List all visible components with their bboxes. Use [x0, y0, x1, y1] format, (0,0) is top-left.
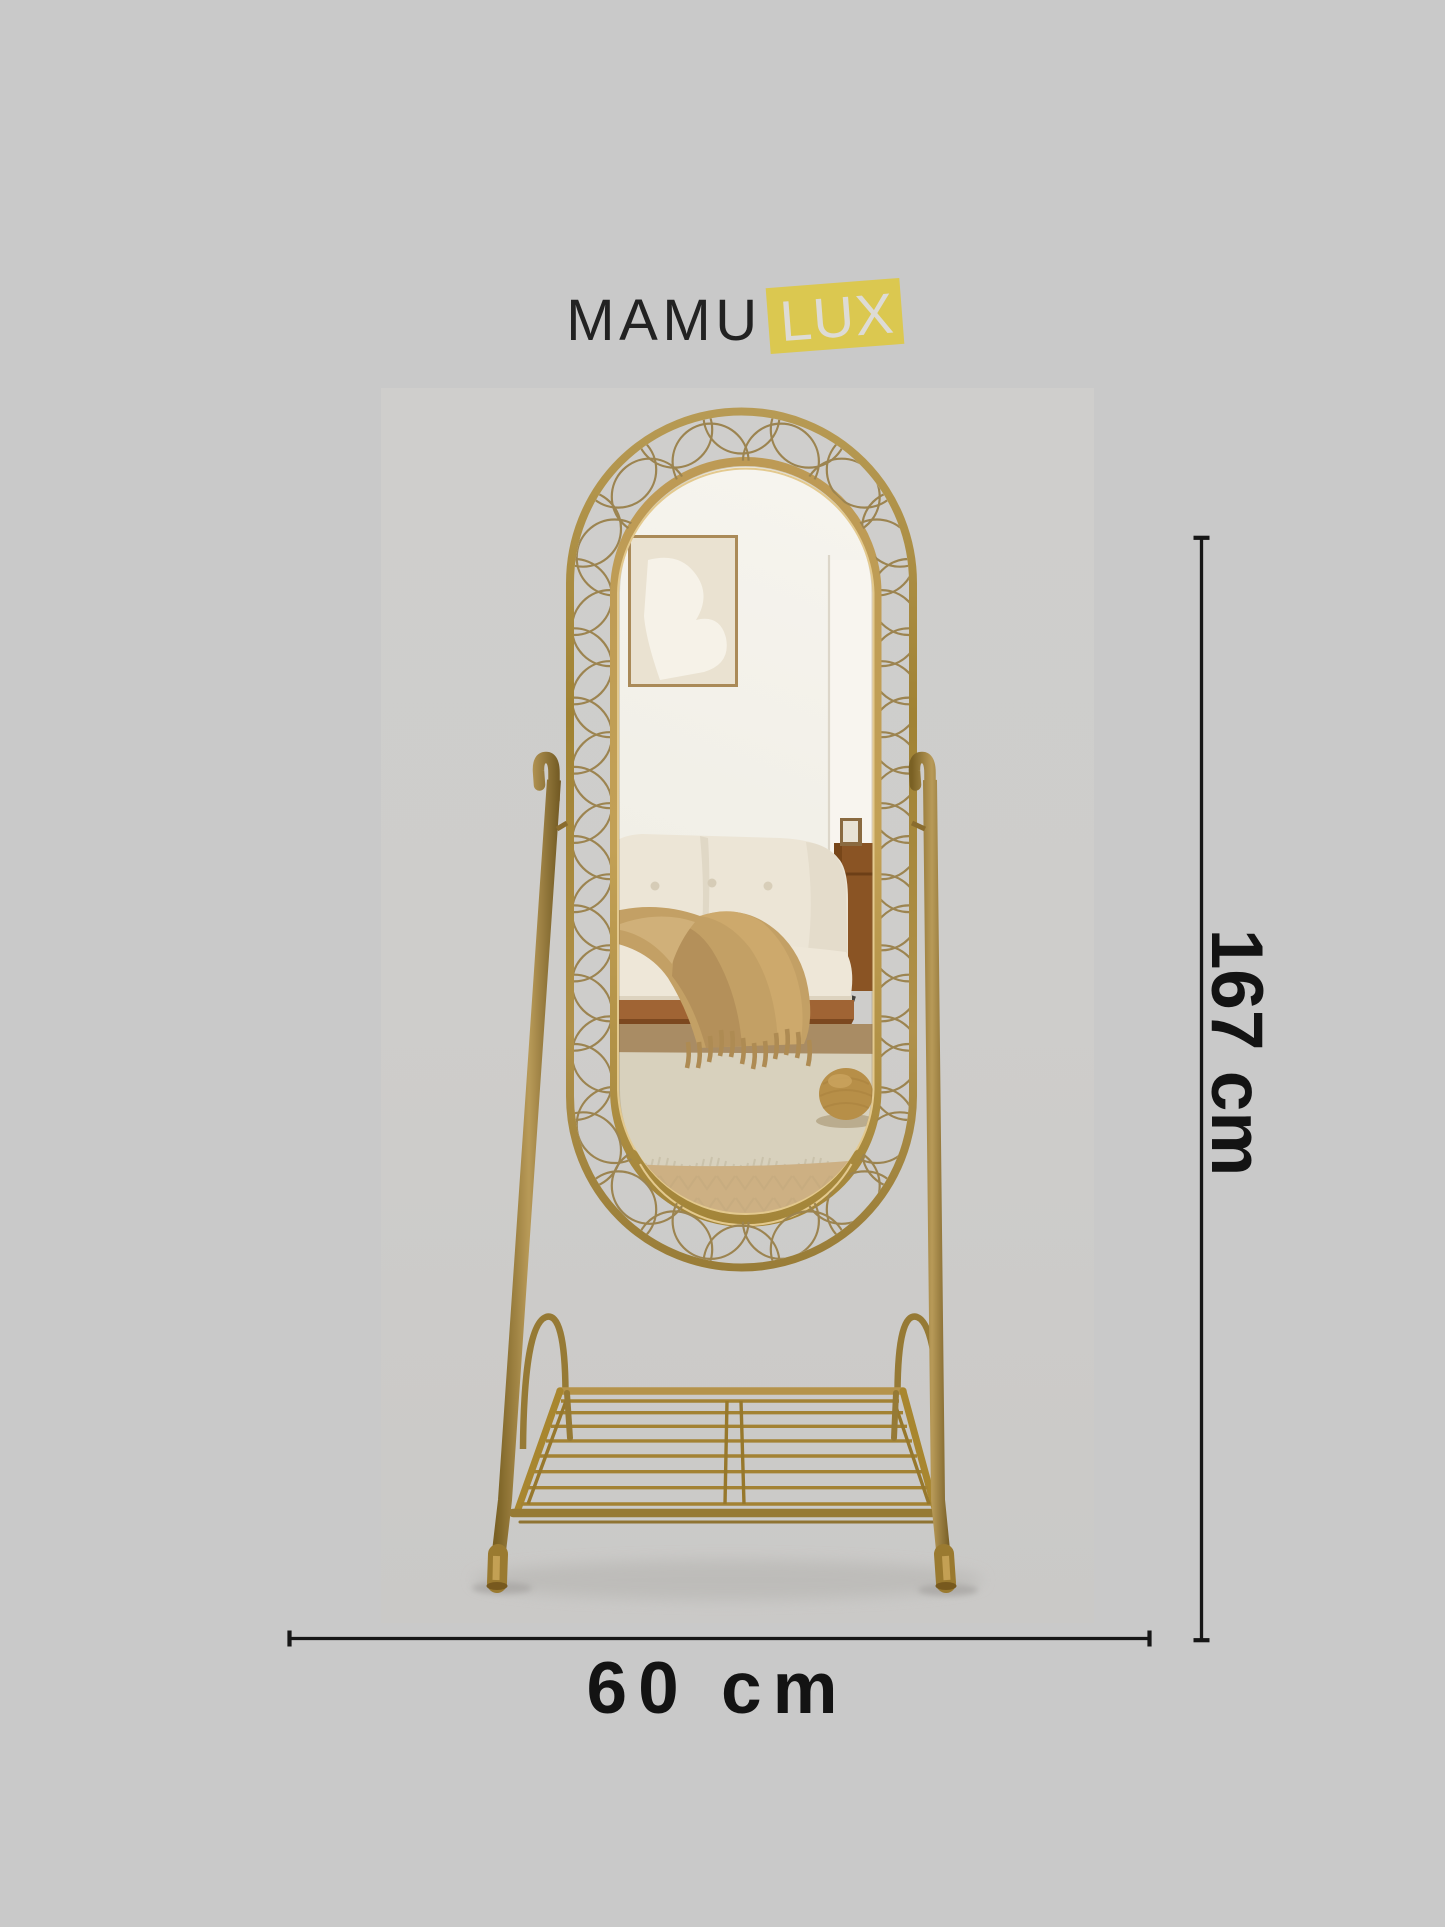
svg-text:167 cm: 167 cm: [1196, 929, 1277, 1177]
svg-text:LUX: LUX: [778, 282, 897, 355]
svg-text:60 cm: 60 cm: [587, 1648, 849, 1729]
svg-text:MAMU: MAMU: [566, 288, 762, 353]
